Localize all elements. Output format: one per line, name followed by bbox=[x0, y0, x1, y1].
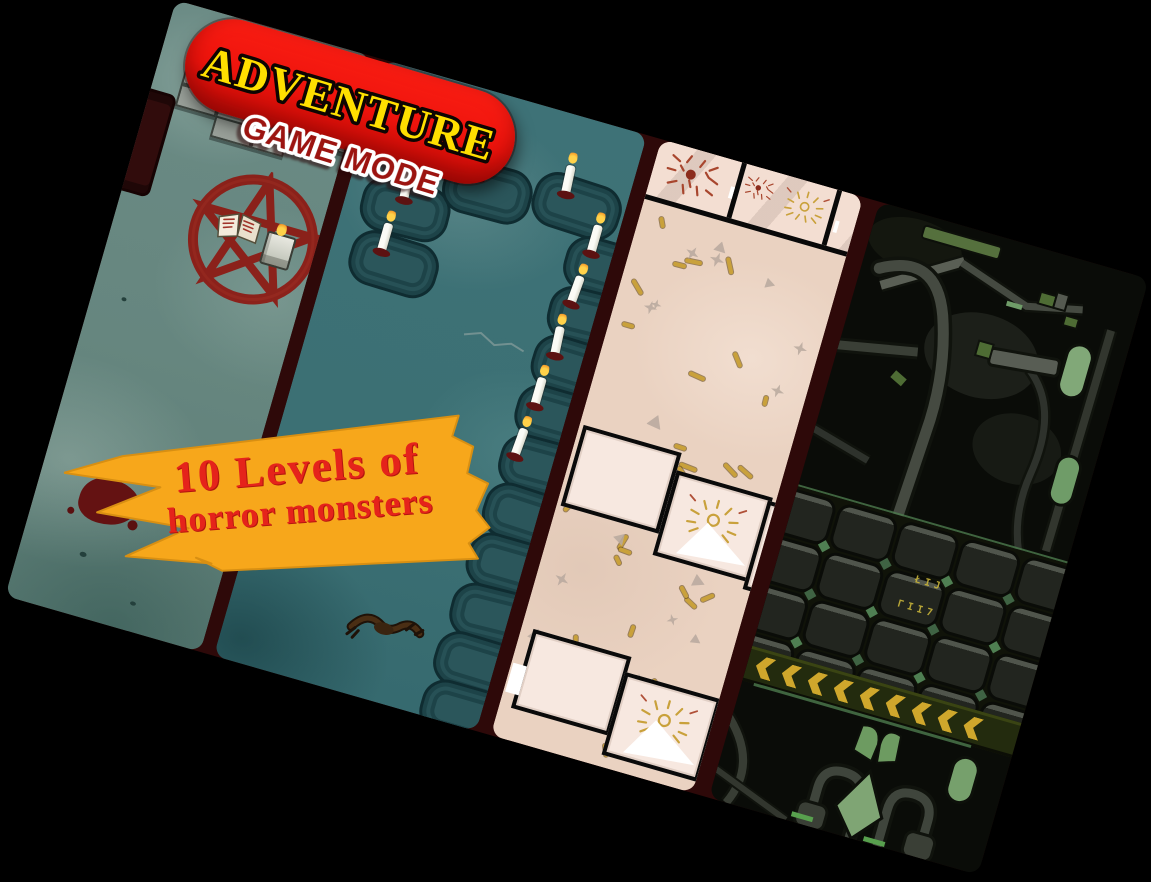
green-diamond-joint bbox=[1002, 593, 1014, 605]
floor-tile bbox=[940, 589, 1005, 645]
grey-sparkle-debris bbox=[791, 340, 809, 358]
green-diamond-joint bbox=[913, 672, 925, 684]
gold-stick-debris bbox=[622, 322, 635, 329]
hazard-chevron-icon bbox=[909, 700, 932, 726]
grey-sparkle-debris bbox=[689, 634, 703, 648]
gold-stick-debris bbox=[628, 625, 636, 638]
floor-tile bbox=[1016, 558, 1068, 614]
red-scribble bbox=[653, 145, 737, 216]
floor-tile bbox=[817, 553, 882, 609]
grey-sparkle-debris bbox=[763, 278, 777, 292]
hazard-chevron-icon bbox=[805, 670, 828, 696]
hazard-chevron-icon bbox=[857, 685, 880, 711]
grey-sparkle-debris bbox=[665, 613, 679, 627]
green-diamond-joint bbox=[804, 588, 816, 600]
grey-sparkle-debris bbox=[712, 241, 728, 257]
gold-stick-debris bbox=[673, 262, 686, 269]
coffin bbox=[114, 86, 178, 198]
candle-flame-icon bbox=[567, 150, 579, 165]
gold-stick-debris bbox=[684, 597, 697, 610]
gold-stick-debris bbox=[680, 585, 690, 598]
gold-stick-debris bbox=[738, 465, 754, 479]
gold-stick-debris bbox=[688, 371, 705, 381]
floor-tile bbox=[954, 541, 1019, 597]
gold-stick-debris bbox=[762, 395, 768, 406]
green-diamond-joint bbox=[852, 654, 864, 666]
gold-stick-debris bbox=[723, 463, 737, 478]
floor-tile bbox=[803, 601, 868, 657]
hazard-chevron-icon bbox=[961, 715, 984, 741]
gold-stick-debris bbox=[614, 555, 622, 566]
gold-stick-debris bbox=[726, 257, 734, 275]
green-diamond-joint bbox=[879, 558, 891, 570]
green-diamond-joint bbox=[790, 636, 802, 648]
floor-tile bbox=[831, 505, 896, 561]
floor-tile bbox=[756, 536, 821, 592]
floor-tile bbox=[865, 619, 930, 675]
green-diamond-joint bbox=[818, 540, 830, 552]
grey-sparkle-debris bbox=[645, 415, 664, 434]
hazard-chevron-icon bbox=[753, 655, 776, 681]
floor-tile bbox=[752, 584, 807, 640]
gold-stick-debris bbox=[631, 279, 643, 296]
debris-speck bbox=[121, 297, 127, 302]
floor-tile bbox=[1002, 606, 1067, 662]
floor-crack bbox=[459, 320, 532, 359]
dead-tree-sprite bbox=[341, 592, 432, 662]
floor-tile bbox=[769, 488, 834, 544]
hazard-chevron-icon bbox=[935, 707, 958, 733]
gold-stick-debris bbox=[732, 351, 742, 367]
hazard-chevron-icon bbox=[779, 663, 802, 689]
floor-tile bbox=[892, 523, 957, 579]
green-diamond-joint bbox=[989, 641, 1001, 653]
grey-sparkle-debris bbox=[707, 250, 727, 270]
grey-sparkle-debris bbox=[689, 574, 707, 592]
gold-stick-debris bbox=[700, 593, 714, 602]
floor-tile bbox=[926, 637, 991, 693]
hazard-chevron-icon bbox=[831, 677, 854, 703]
grey-sparkle-debris bbox=[768, 382, 786, 400]
green-diamond-joint bbox=[927, 624, 939, 636]
hazard-chevron-icon bbox=[883, 692, 906, 718]
grey-sparkle-debris bbox=[551, 569, 572, 590]
floor-tile bbox=[988, 654, 1053, 710]
gold-stick-debris bbox=[684, 258, 702, 265]
gold-stick-debris bbox=[659, 217, 665, 229]
door-gap bbox=[833, 220, 840, 233]
debris-speck bbox=[130, 601, 137, 606]
green-diamond-joint bbox=[975, 689, 987, 701]
gold-stick-debris bbox=[618, 547, 632, 555]
green-diamond-joint bbox=[866, 606, 878, 618]
